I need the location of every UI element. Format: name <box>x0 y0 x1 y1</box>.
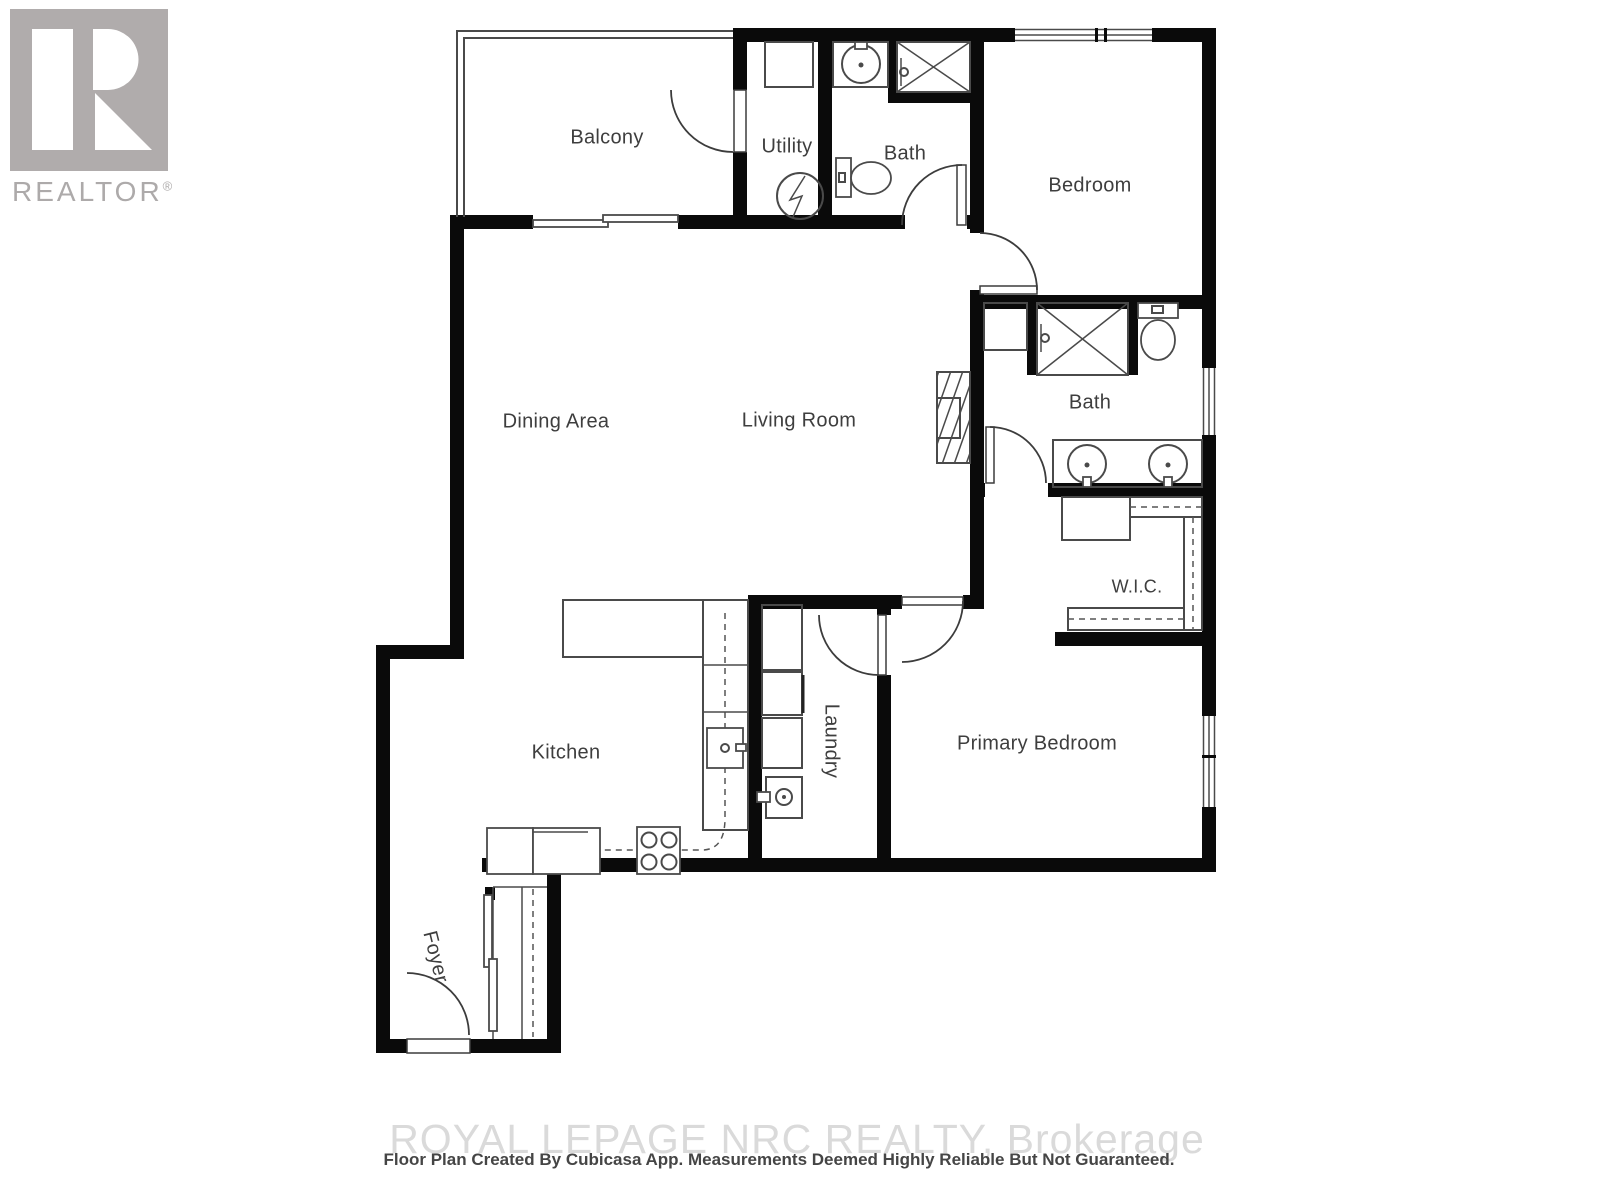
room-label-laundry: Laundry <box>820 704 843 778</box>
primary-bedroom-door <box>902 597 963 662</box>
bedroom-door <box>980 233 1037 294</box>
faucet-icon <box>855 42 867 49</box>
balcony-door <box>671 90 747 152</box>
foyer-closet <box>484 887 547 1039</box>
sink-counter <box>533 828 600 874</box>
utility-shelf <box>765 42 813 87</box>
front-door <box>407 973 470 1053</box>
washer-icon <box>757 777 802 818</box>
counter <box>984 303 1027 350</box>
toilet-icon <box>836 158 891 197</box>
balcony-outline <box>457 31 733 217</box>
ensuite-door <box>986 427 1046 483</box>
doors <box>407 90 1046 1053</box>
counter-peninsula <box>563 600 703 657</box>
room-label-bedroom: Bedroom <box>1048 175 1131 198</box>
dishwasher-icon <box>707 728 746 768</box>
fridge-icon <box>487 828 533 874</box>
room-label-living: Living Room <box>742 410 856 433</box>
cabinet <box>762 605 802 670</box>
cabinet <box>762 672 802 715</box>
laundry-fixtures <box>757 605 803 818</box>
room-label-kitchen: Kitchen <box>532 742 601 765</box>
double-vanity <box>1053 440 1202 487</box>
bath-top-door <box>902 165 966 225</box>
utility-fixtures <box>765 42 823 219</box>
floor-plan-page: REALTOR® <box>0 0 1600 1200</box>
bedroom-window <box>1012 28 1155 42</box>
toilet-icon <box>1138 303 1178 360</box>
room-label-bath-top: Bath <box>884 143 926 166</box>
room-label-primary: Primary Bedroom <box>957 733 1117 756</box>
kitchen-fixtures <box>487 600 748 874</box>
stove-icon <box>637 827 680 874</box>
room-label-bath-ensuite: Bath <box>1069 392 1111 415</box>
floor-plan-drawing <box>0 0 1600 1200</box>
wic-fixtures <box>1062 497 1202 630</box>
sliding-door-panel <box>489 959 497 1031</box>
sliding-door-panel <box>484 895 492 967</box>
ensuite-window <box>1202 365 1216 438</box>
primary-bedroom-window <box>1202 713 1216 810</box>
disclaimer-text: Floor Plan Created By Cubicasa App. Meas… <box>384 1150 1175 1170</box>
room-label-dining: Dining Area <box>503 411 610 434</box>
balcony-sliding-door <box>533 215 678 227</box>
bath-top-fixtures <box>833 42 970 197</box>
room-label-utility: Utility <box>762 136 813 159</box>
room-label-wic: W.I.C. <box>1112 577 1163 598</box>
laundry-door <box>819 615 886 675</box>
room-label-balcony: Balcony <box>570 127 643 150</box>
cabinet <box>762 718 802 768</box>
cabinet <box>1062 497 1130 540</box>
